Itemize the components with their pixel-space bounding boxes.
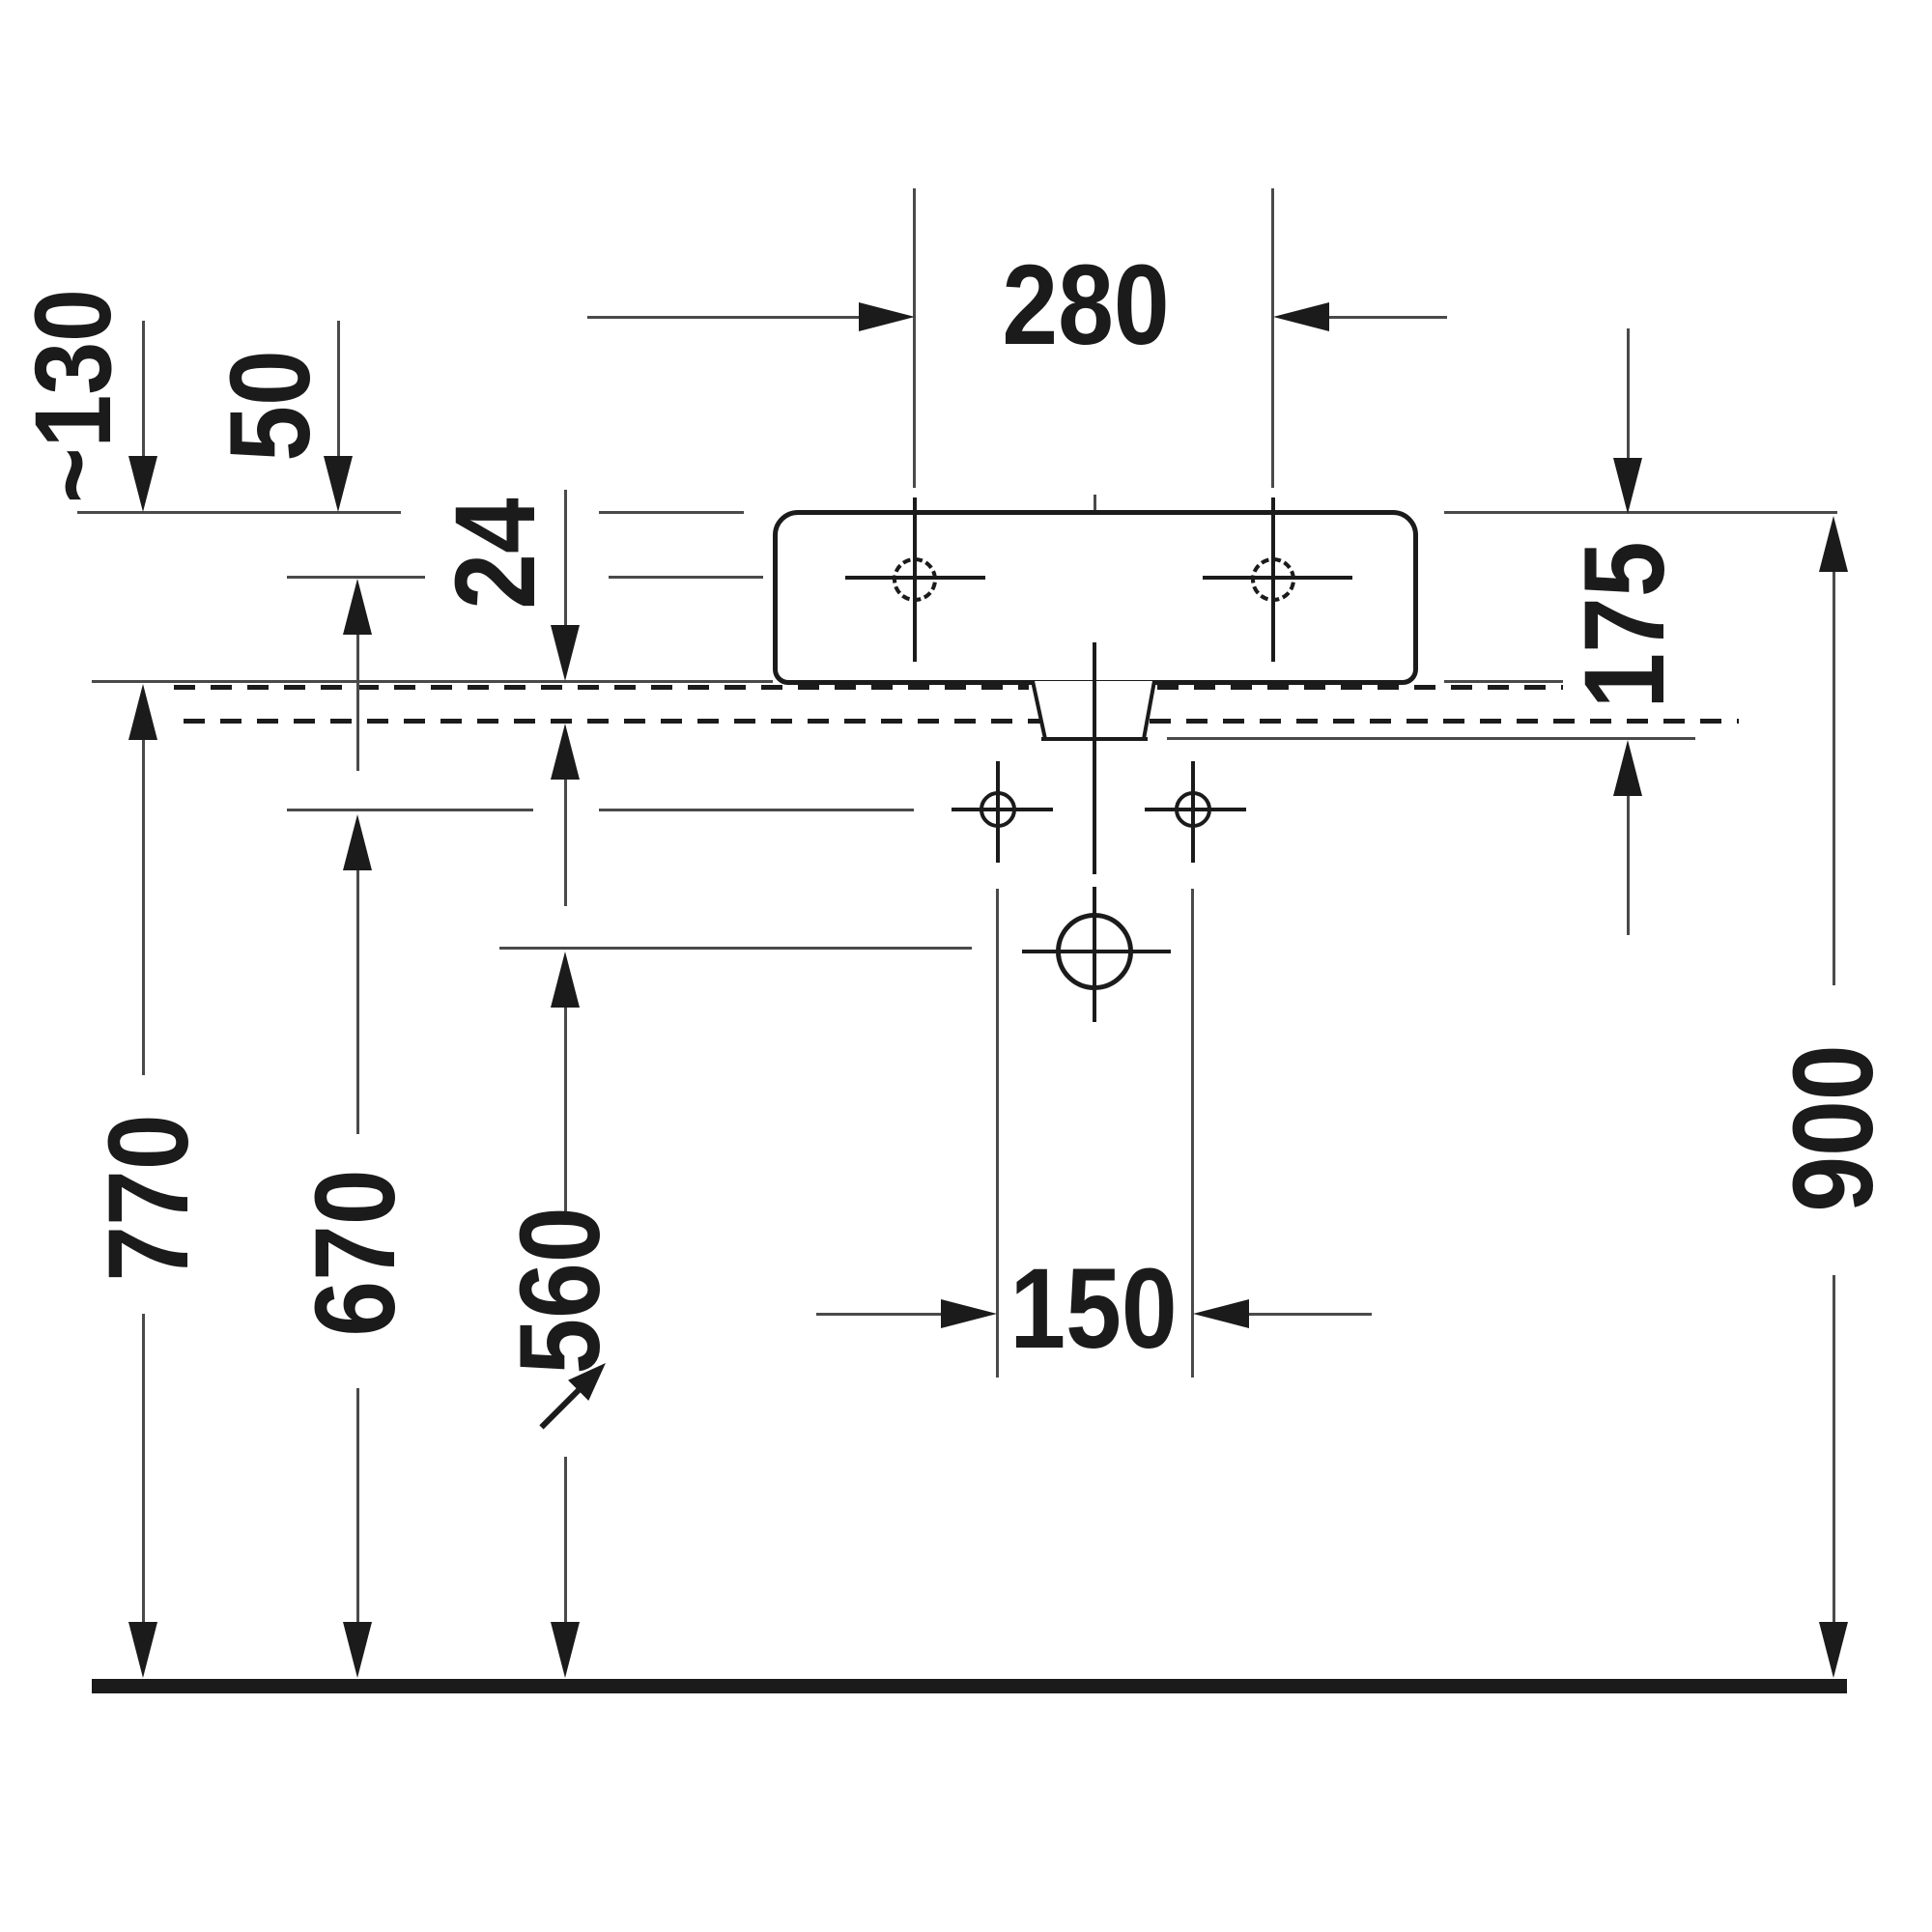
dim-560-lower-line [564,1457,567,1623]
dim-560-up-arrow [551,952,580,1008]
dim-label-50: 50 [208,270,333,542]
fixing-hole-level-line-a [287,809,533,811]
dim-label-900: 900 [1771,992,1896,1264]
dim-670-up-arrow [343,814,372,870]
dim-150-right-tail [1248,1313,1372,1316]
dim-label-560: 560 [497,1154,623,1427]
dim-50-upper-line [337,321,340,456]
dim-770-floor-arrow [128,1622,157,1678]
dim-175-lower-tail [1627,796,1630,935]
dim-175-upper-line [1627,328,1630,458]
dim-label-150: 150 [957,1246,1230,1372]
dim-label-175: 175 [1562,489,1688,761]
dim-label-280: 280 [950,242,1222,368]
dim-50-lower-tail [356,635,359,771]
basin-centre-tick [1094,495,1096,510]
dim-900-top-arrow [1819,516,1848,572]
dim-280-left-point-arrow [1273,302,1329,331]
dim-770-lower-line [142,1314,145,1623]
dim-770-upper-tail [142,740,145,1075]
floor-line [92,1679,1847,1693]
dim-560-floor-arrow [551,1622,580,1678]
dim-150-left-tail [816,1313,942,1316]
dim-900-floor-arrow [1819,1622,1848,1678]
dim-670-lower-line [356,1388,359,1623]
fixing-hole-left-crosshair-h [952,808,1053,811]
fixing-hole-level-line-b [599,809,914,811]
dim-label-24: 24 [433,417,558,690]
dim-50-up-arrow [343,579,372,635]
rim-level-line-left-b [599,511,744,514]
tap-hole-right-crosshair-h [1203,576,1352,580]
dim-24-up-arrow [551,724,580,780]
wall-dash-line-upper-right [1157,685,1563,690]
dim-280-left-tail [587,316,860,319]
dim-670-floor-arrow [343,1622,372,1678]
dim-670-upper-tail [356,870,359,1134]
dim-280-right-tail [1328,316,1447,319]
taphole-level-line-left-b [609,576,763,579]
dim-label-670: 670 [293,1117,418,1389]
dim-280-ext-line-right [1271,188,1274,488]
drain-tailpiece-outline [1019,678,1164,746]
dim-label-770: 770 [86,1062,212,1334]
dim-280-right-point-arrow [859,302,915,331]
dim-280-ext-line-left [913,188,916,488]
drain-level-line [499,947,972,950]
wall-dash-line-lower-left [184,719,1043,724]
fixing-hole-right-crosshair-h [1145,808,1246,811]
dim-900-lower-line [1833,1275,1835,1623]
dim-label-approx130: ~130 [11,260,136,532]
drain-crosshair-v [1093,887,1096,1022]
fixing-hole-right-crosshair-v [1191,761,1195,863]
fixing-hole-left-crosshair-v [996,761,1000,863]
technical-drawing-canvas: ~130 50 24 280 175 770 670 560 [0,0,1932,1932]
dim-130-upper-line [142,321,145,456]
dim-900-upper-line [1833,572,1835,985]
mounting-surface-line-right [1444,680,1563,683]
tap-hole-left-crosshair-v [913,497,917,662]
drain-crosshair-h [1022,950,1171,953]
wall-dash-line-upper-left [174,685,1029,690]
dim-24-upper-line [564,490,567,625]
dim-24-lower-tail [564,780,567,906]
tailpiece-centreline [1093,642,1096,874]
tap-hole-right-crosshair-v [1271,497,1275,662]
dim-130-up-arrow [128,684,157,740]
